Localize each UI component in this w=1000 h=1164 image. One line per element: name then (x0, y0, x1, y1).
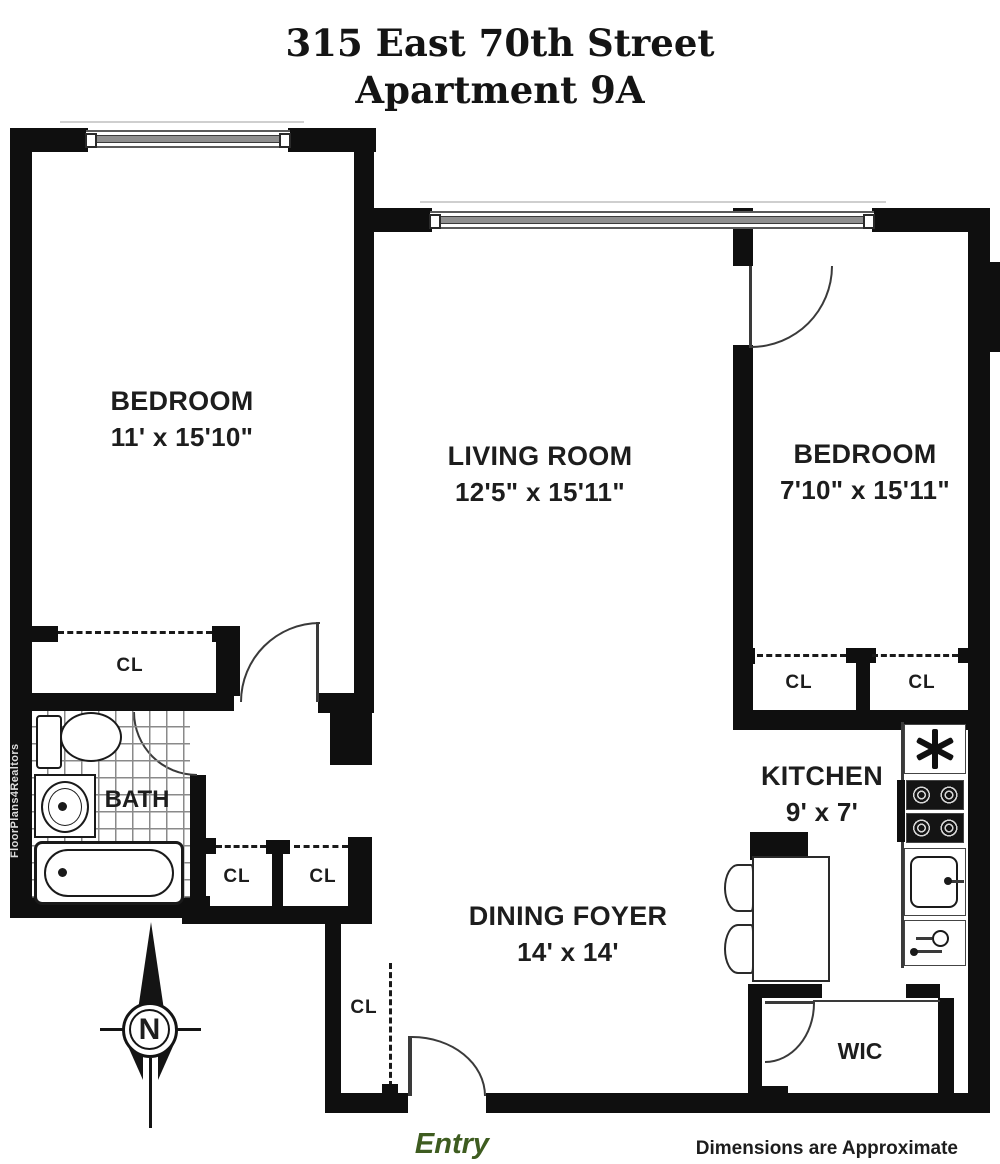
wall (748, 984, 822, 998)
window-cap (863, 214, 875, 229)
wic-door-leaf (765, 1001, 815, 1004)
living-bedroom2-window (430, 211, 874, 229)
bedroom1-door-arc (240, 622, 320, 702)
bedroom1-door-leaf (316, 622, 319, 702)
closet-label: CL (892, 672, 952, 694)
wic-door-arc (765, 1003, 815, 1063)
room-dims: 9' x 7' (702, 794, 942, 830)
wall (984, 262, 1000, 352)
living-room-label: LIVING ROOM 12'5" x 15'11" (420, 438, 660, 510)
closet-dashed-line (58, 631, 212, 634)
wall (856, 662, 870, 712)
bedroom1-label: BEDROOM 11' x 15'10" (62, 383, 302, 455)
window-cap (429, 214, 441, 229)
window-cap (85, 133, 97, 148)
entry-label: Entry (392, 1128, 512, 1161)
appliance-icon (914, 950, 942, 953)
compass-north-label: N (125, 1013, 174, 1047)
plan-title-line2: Apartment 9A (0, 67, 1000, 114)
kitchen-table (752, 856, 830, 982)
bathtub-faucet (58, 868, 67, 877)
chair (724, 924, 754, 974)
wall (272, 854, 283, 912)
compass-rose: N (122, 1002, 178, 1058)
closet-dashed-line (294, 845, 348, 848)
wall (938, 998, 954, 1098)
floor-plan: 315 East 70th Street Apartment 9A (0, 0, 1000, 1164)
kitchen-faucet-knob (944, 877, 952, 885)
plan-title: 315 East 70th Street Apartment 9A (0, 20, 1000, 114)
window-glass (93, 135, 283, 143)
bedroom1-window (86, 130, 290, 148)
room-name: KITCHEN (702, 758, 942, 794)
wall (748, 998, 762, 1093)
wall (10, 693, 234, 711)
wall (190, 838, 216, 854)
bath-label: BATH (97, 786, 177, 814)
wall (958, 648, 988, 663)
closet-label: CL (334, 997, 394, 1019)
room-name: BEDROOM (62, 383, 302, 419)
bedroom2-door-leaf (749, 266, 752, 348)
wall (330, 705, 372, 765)
bedroom2-label: BEDROOM 7'10" x 15'11" (745, 436, 985, 508)
closet-dashed-line (872, 654, 958, 657)
closet-label: CL (207, 866, 267, 888)
wall (354, 128, 374, 708)
closet-dashed-line (216, 845, 266, 848)
closet-dashed-line (757, 654, 846, 657)
room-dims: 12'5" x 15'11" (420, 474, 660, 510)
wall (906, 984, 940, 998)
bedroom2-door-arc (751, 266, 833, 348)
room-dims: 14' x 14' (448, 934, 688, 970)
closet-label: CL (100, 655, 160, 677)
compass-tick (176, 1028, 201, 1031)
room-dims: 11' x 15'10" (62, 419, 302, 455)
wall (374, 208, 432, 232)
room-dims: 7'10" x 15'11" (745, 472, 985, 508)
kitchen-label: KITCHEN 9' x 7' (702, 758, 942, 830)
wic-top-line (813, 1000, 940, 1002)
wall (10, 128, 88, 152)
wall (382, 1084, 398, 1098)
window-sill-line (420, 201, 886, 203)
toilet-bowl (60, 712, 122, 762)
wall (216, 626, 240, 696)
wall (758, 1086, 788, 1112)
kitchen-faucet (950, 880, 964, 883)
window-sill-line (60, 121, 304, 123)
closet-label: CL (293, 866, 353, 888)
disclaimer-text: Dimensions are Approximate (648, 1138, 958, 1160)
appliance-icon (910, 948, 918, 956)
closet-dashed-line (389, 963, 392, 1087)
window-glass (437, 216, 867, 224)
bath-sink-faucet (58, 802, 67, 811)
watermark-text: FloorPlans4Realtors (9, 692, 32, 910)
appliance-icon (932, 930, 949, 947)
appliance-icon (916, 937, 932, 940)
wall (486, 1093, 990, 1113)
plan-title-line1: 315 East 70th Street (0, 20, 1000, 67)
window-cap (279, 133, 291, 148)
entry-door-leaf (408, 1036, 412, 1096)
chair (724, 864, 754, 912)
toilet-tank (36, 715, 62, 769)
wall (30, 626, 58, 642)
wall (266, 840, 290, 854)
room-name: DINING FOYER (448, 898, 688, 934)
dining-foyer-label: DINING FOYER 14' x 14' (448, 898, 688, 970)
room-name: BEDROOM (745, 436, 985, 472)
closet-label: CL (769, 672, 829, 694)
wic-label: WIC (820, 1038, 900, 1065)
room-name: LIVING ROOM (420, 438, 660, 474)
wall (733, 648, 755, 664)
compass-tail (149, 1058, 152, 1128)
compass-needle-icon (138, 922, 164, 1010)
entry-door-arc (412, 1036, 486, 1096)
